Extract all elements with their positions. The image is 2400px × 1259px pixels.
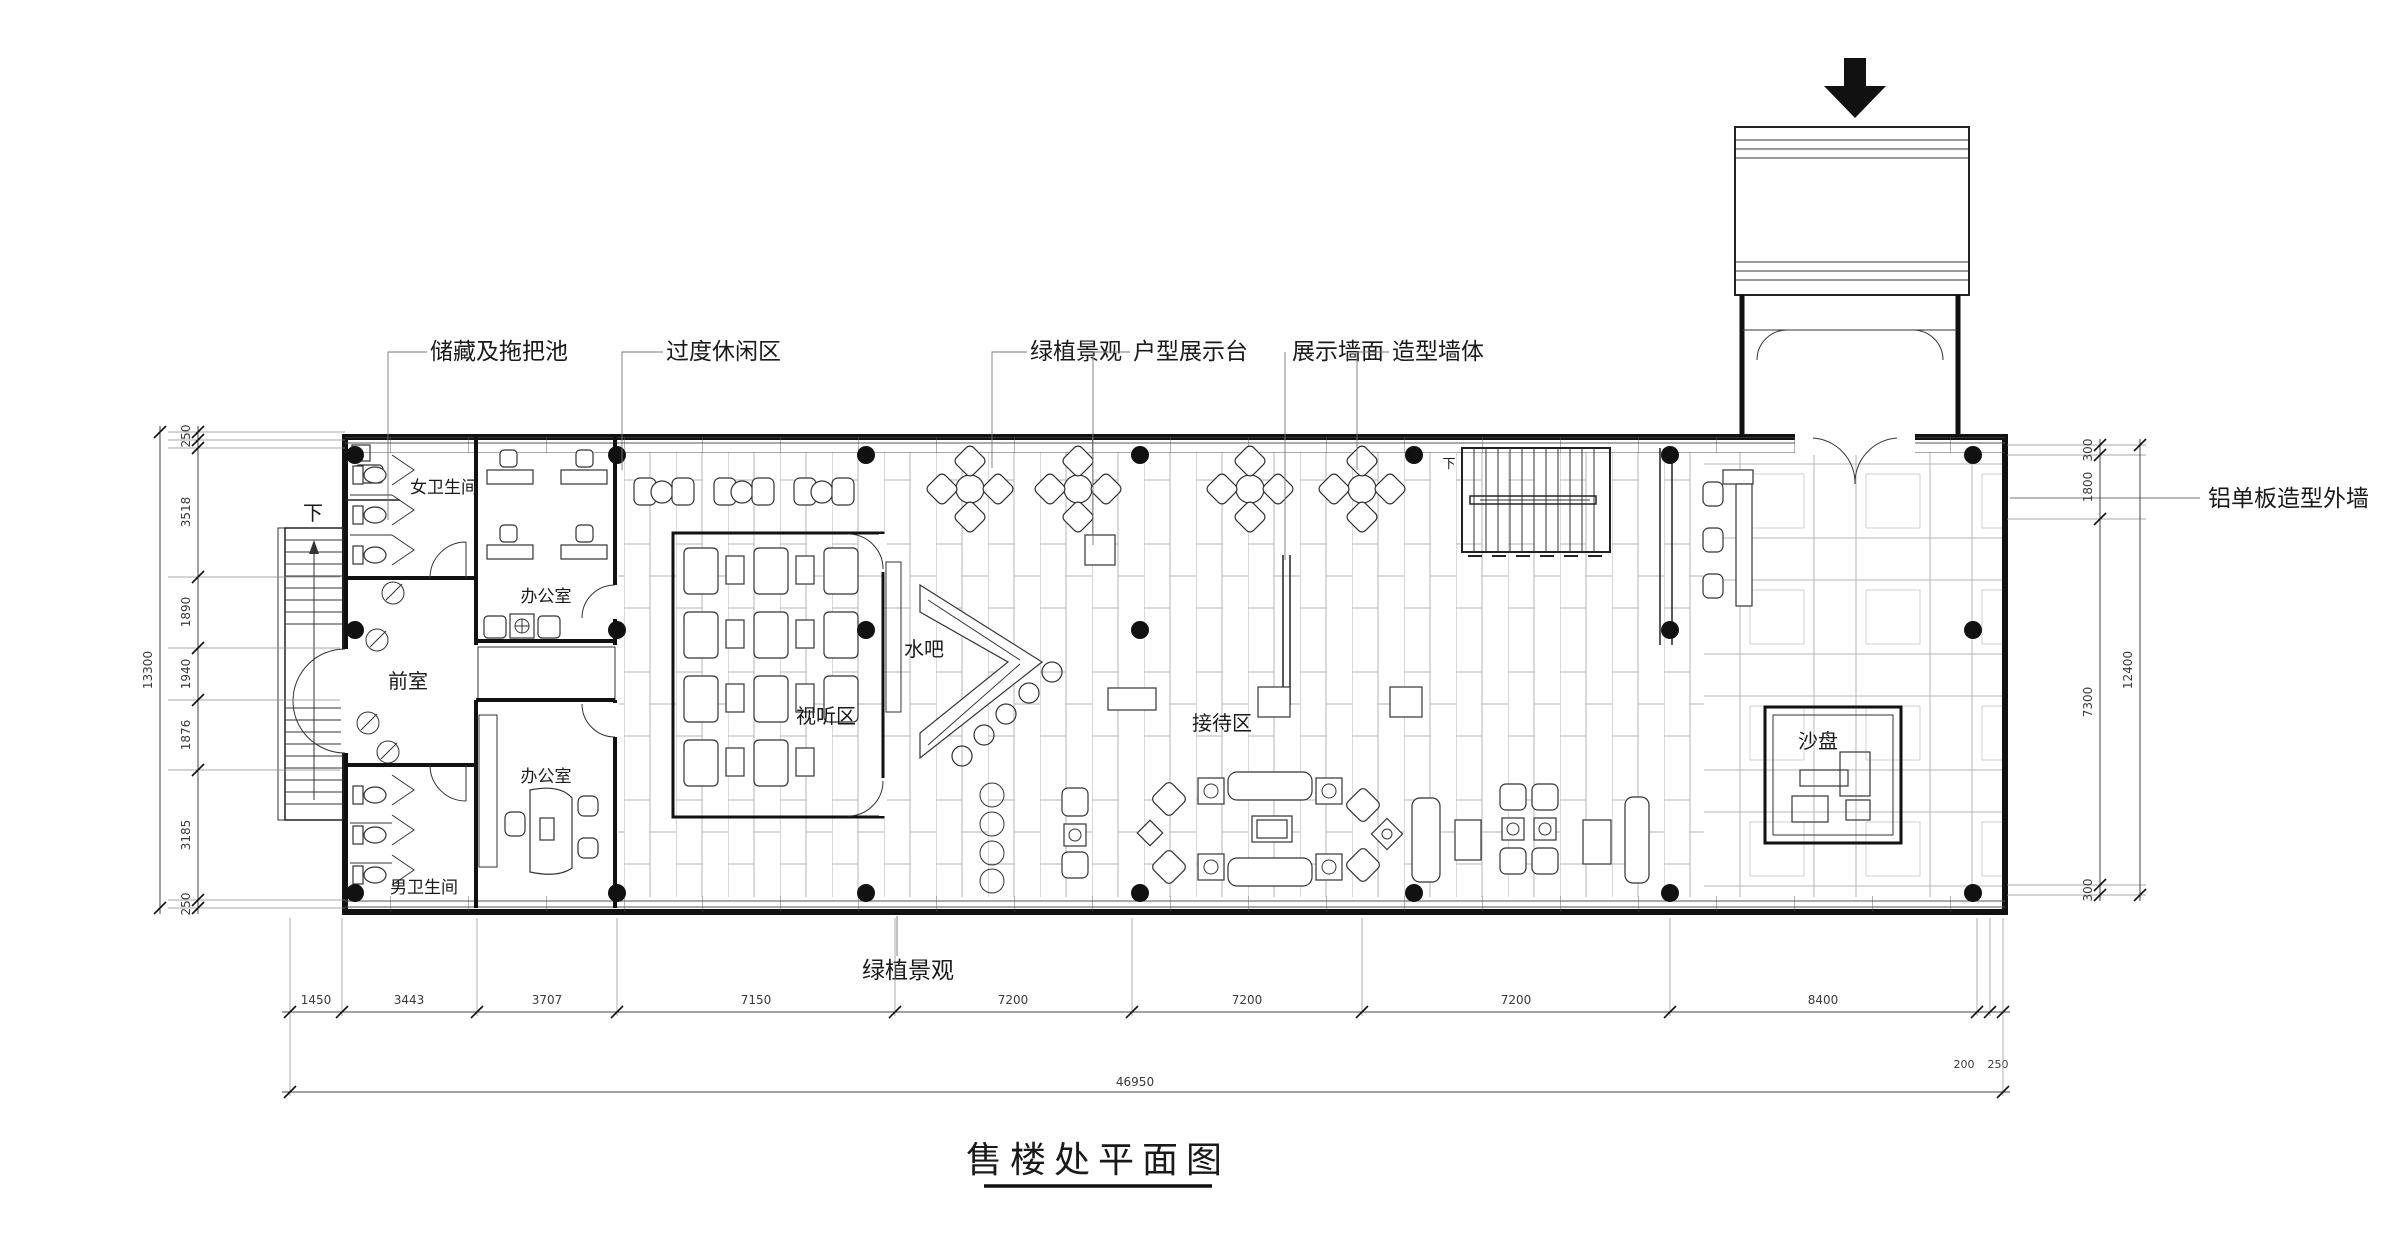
dim-bottom-5: 7200 bbox=[1232, 993, 1263, 1007]
dim-left-6: 250 bbox=[179, 893, 193, 916]
dim-left-3: 1940 bbox=[179, 659, 193, 690]
room-women-wc: 女卫生间 bbox=[350, 445, 478, 578]
dim-left-0: 250 bbox=[179, 425, 193, 448]
entrance-vestibule bbox=[1735, 58, 1969, 484]
dim-right-0: 300 bbox=[2081, 439, 2095, 462]
room-label-av: 视听区 bbox=[796, 704, 856, 728]
dim-right-total: 12400 bbox=[2121, 651, 2135, 689]
room-anteroom: 前室 bbox=[357, 582, 428, 763]
dim-right-1: 1800 bbox=[2081, 472, 2095, 503]
room-label-water-bar: 水吧 bbox=[904, 637, 944, 661]
dim-bottom-4: 7200 bbox=[998, 993, 1029, 1007]
dim-bottom-9: 250 bbox=[1988, 1058, 2009, 1071]
bottom-curtain-wall bbox=[345, 896, 2005, 912]
dim-bottom-2: 3707 bbox=[532, 993, 563, 1007]
toilets-men bbox=[353, 786, 386, 884]
dim-left-2: 1890 bbox=[179, 597, 193, 628]
vestibule-door-leaves bbox=[1757, 330, 1943, 360]
anteroom-entry-doors bbox=[293, 649, 345, 753]
dimension-right: 300 1800 7300 300 12400 bbox=[2007, 439, 2146, 902]
room-label-men-wc: 男卫生间 bbox=[390, 878, 458, 898]
room-label-reception: 接待区 bbox=[1192, 711, 1252, 735]
room-label-anteroom: 前室 bbox=[388, 669, 428, 693]
drawing-title-block: 售楼处平面图 bbox=[966, 1140, 1230, 1186]
dim-left-4: 1876 bbox=[179, 720, 193, 751]
callout-unit-display: 户型展示台 bbox=[1133, 339, 1248, 365]
dim-bottom-0: 1450 bbox=[301, 993, 332, 1007]
room-label-women-wc: 女卫生间 bbox=[410, 478, 478, 498]
toilets-women bbox=[353, 466, 386, 564]
dim-bottom-1: 3443 bbox=[394, 993, 425, 1007]
dim-bottom-3: 7150 bbox=[741, 993, 772, 1007]
exterior-stair-left: 下 bbox=[278, 501, 349, 820]
stall-doors-men bbox=[392, 775, 414, 885]
stall-doors-women bbox=[392, 455, 414, 565]
callout-feature-wall: 造型墙体 bbox=[1392, 339, 1484, 365]
callout-leisure: 过度休闲区 bbox=[666, 339, 781, 365]
room-label-office-top: 办公室 bbox=[521, 587, 572, 607]
stair-down-label-left: 下 bbox=[303, 501, 323, 525]
dim-left-5: 3185 bbox=[179, 820, 193, 851]
leisure-seating-row bbox=[634, 478, 854, 505]
room-office-bottom: 办公室 bbox=[479, 715, 598, 874]
dim-left-1: 3518 bbox=[179, 497, 193, 528]
manager-desk bbox=[530, 788, 572, 874]
drawing-title: 售楼处平面图 bbox=[966, 1140, 1230, 1181]
room-men-wc: 男卫生间 bbox=[350, 765, 466, 898]
callout-exterior-wall: 铝单板造型外墙 bbox=[2208, 486, 2369, 512]
dim-bottom-6: 7200 bbox=[1501, 993, 1532, 1007]
dim-left-total: 13300 bbox=[141, 651, 155, 689]
room-label-office-bottom: 办公室 bbox=[521, 767, 572, 787]
room-label-sand-table: 沙盘 bbox=[1798, 729, 1838, 753]
top-curtain-wall bbox=[345, 437, 2005, 453]
dim-bottom-total: 46950 bbox=[1116, 1075, 1154, 1089]
callout-storage: 储藏及拖把池 bbox=[430, 339, 568, 365]
room-office-top: 办公室 bbox=[484, 450, 607, 638]
floor-plan-canvas: 下 女卫生间 男卫生 bbox=[0, 0, 2400, 1259]
dim-bottom-8: 200 bbox=[1954, 1058, 1975, 1071]
dim-right-3: 300 bbox=[2081, 879, 2095, 902]
entry-arrow-icon bbox=[1824, 58, 1886, 118]
dim-bottom-7: 8400 bbox=[1808, 993, 1839, 1007]
callout-plants-bottom: 绿植景观 bbox=[862, 958, 954, 984]
stair-down-label-top: 下 bbox=[1442, 457, 1455, 472]
dim-right-2: 7300 bbox=[2081, 687, 2095, 718]
dimension-bottom: 1450 3443 3707 7150 7200 7200 7200 8400 … bbox=[282, 918, 2010, 1098]
